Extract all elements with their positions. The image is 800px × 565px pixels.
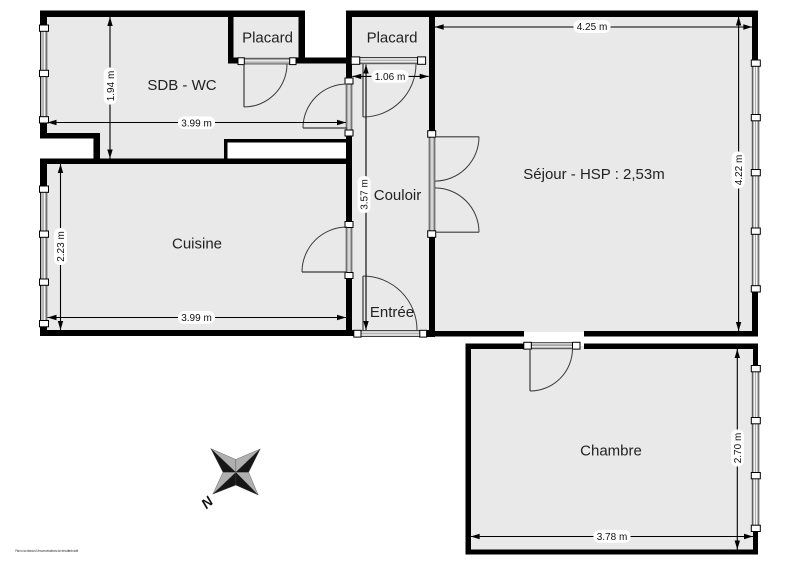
svg-text:Couloir: Couloir	[374, 187, 422, 204]
svg-text:Séjour - HSP : 2,53m: Séjour - HSP : 2,53m	[523, 166, 664, 183]
svg-text:Placard: Placard	[242, 30, 293, 47]
svg-text:Chambre: Chambre	[580, 443, 642, 460]
svg-text:3.78 m: 3.78 m	[597, 532, 628, 543]
svg-text:Cuisine: Cuisine	[172, 236, 222, 253]
svg-text:3.57 m: 3.57 m	[360, 179, 371, 210]
svg-text:1.94 m: 1.94 m	[106, 71, 117, 102]
svg-text:3.99 m: 3.99 m	[181, 313, 212, 324]
svg-text:2.23 m: 2.23 m	[56, 231, 67, 262]
svg-text:Plan non contractuel - Mesures: Plan non contractuel - Mesures et surfac…	[15, 549, 78, 553]
svg-text:1.06 m: 1.06 m	[375, 72, 406, 83]
svg-text:SDB - WC: SDB - WC	[147, 77, 216, 94]
svg-text:Placard: Placard	[367, 30, 418, 47]
svg-text:4.22 m: 4.22 m	[734, 155, 745, 186]
svg-text:2.70 m: 2.70 m	[733, 433, 744, 464]
svg-text:3.99 m: 3.99 m	[181, 118, 212, 129]
svg-text:4.25 m: 4.25 m	[577, 22, 608, 33]
svg-text:Entrée: Entrée	[370, 304, 414, 321]
